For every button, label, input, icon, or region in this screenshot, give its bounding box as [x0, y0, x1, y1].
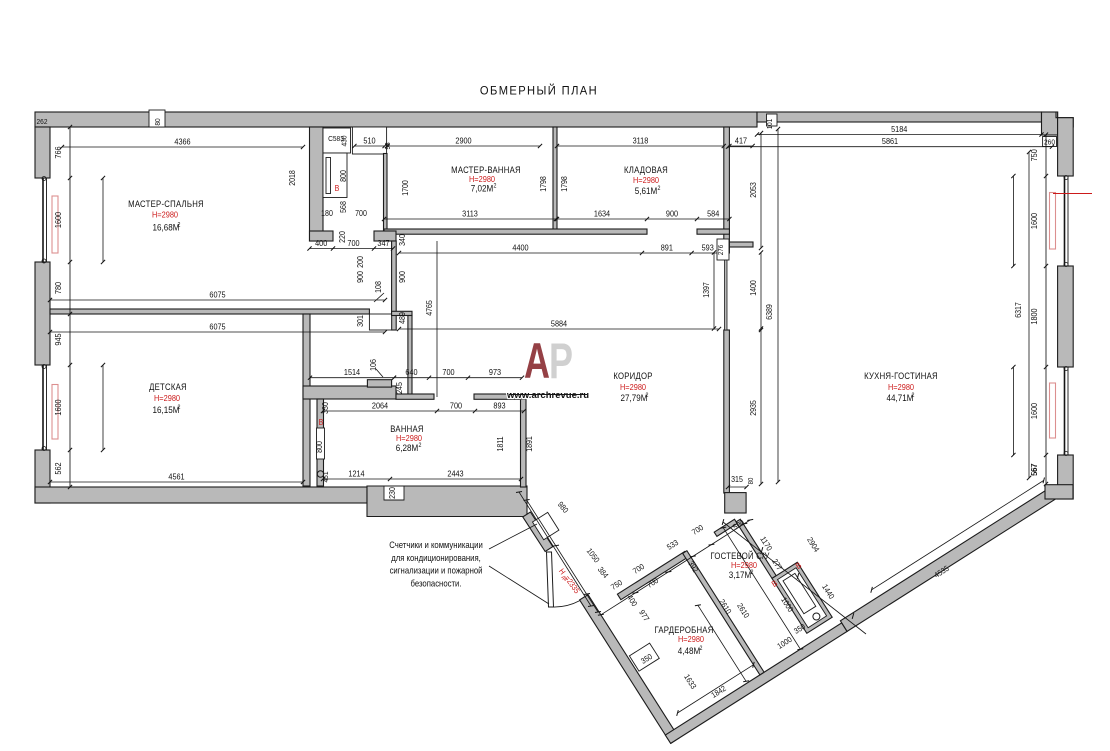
- svg-text:МАСТЕР-СПАЛЬНЯ: МАСТЕР-СПАЛЬНЯ: [128, 200, 204, 210]
- svg-text:2064: 2064: [372, 401, 389, 411]
- svg-text:2: 2: [178, 222, 181, 228]
- svg-text:27,79М: 27,79М: [621, 393, 648, 404]
- svg-text:1700: 1700: [401, 180, 411, 196]
- svg-text:315: 315: [731, 475, 743, 485]
- svg-text:417: 417: [735, 136, 747, 146]
- svg-text:301: 301: [356, 315, 366, 327]
- svg-text:900: 900: [398, 271, 408, 283]
- svg-text:640: 640: [405, 368, 418, 378]
- svg-text:6389: 6389: [765, 304, 775, 320]
- svg-text:16,68М: 16,68М: [153, 222, 180, 233]
- svg-text:2053: 2053: [749, 182, 759, 198]
- svg-text:230: 230: [388, 487, 398, 499]
- svg-text:900: 900: [666, 209, 679, 219]
- svg-text:562: 562: [54, 462, 64, 474]
- svg-text:сигнализации и пожарной: сигнализации и пожарной: [390, 566, 483, 576]
- svg-text:1600: 1600: [54, 211, 64, 228]
- svg-text:262: 262: [37, 119, 48, 126]
- svg-text:ГОСТЕВОЙ С/У: ГОСТЕВОЙ С/У: [710, 549, 770, 561]
- svg-text:893: 893: [493, 401, 505, 411]
- svg-text:2: 2: [494, 183, 497, 189]
- svg-text:Н=2980: Н=2980: [888, 383, 915, 393]
- svg-text:2900: 2900: [455, 136, 472, 146]
- svg-text:330: 330: [321, 402, 331, 414]
- svg-text:В: В: [319, 418, 324, 428]
- svg-text:2: 2: [646, 393, 649, 399]
- svg-text:Р: Р: [549, 334, 573, 389]
- svg-text:Н=2980: Н=2980: [678, 635, 705, 645]
- svg-text:3118: 3118: [633, 136, 649, 146]
- svg-text:1798: 1798: [539, 176, 549, 192]
- svg-text:973: 973: [489, 368, 501, 378]
- svg-text:Н=2980: Н=2980: [620, 383, 647, 393]
- svg-text:2: 2: [419, 443, 422, 449]
- svg-text:1214: 1214: [348, 469, 365, 479]
- svg-text:593: 593: [702, 243, 714, 253]
- svg-text:510: 510: [363, 136, 376, 146]
- svg-text:Н=2980: Н=2980: [633, 176, 660, 186]
- svg-text:1600: 1600: [1030, 402, 1040, 419]
- svg-text:КУХНЯ-ГОСТИНАЯ: КУХНЯ-ГОСТИНАЯ: [864, 372, 938, 382]
- svg-text:1397: 1397: [702, 282, 712, 298]
- svg-text:2: 2: [178, 405, 181, 411]
- svg-text:1400: 1400: [749, 280, 759, 296]
- svg-text:800: 800: [315, 441, 325, 453]
- svg-text:2: 2: [751, 570, 754, 576]
- svg-text:5184: 5184: [891, 125, 908, 135]
- svg-text:2443: 2443: [447, 469, 463, 479]
- svg-text:В: В: [335, 184, 340, 194]
- svg-text:4366: 4366: [174, 137, 190, 147]
- svg-text:276: 276: [718, 245, 725, 256]
- svg-text:КЛАДОВАЯ: КЛАДОВАЯ: [624, 166, 668, 176]
- svg-text:945: 945: [54, 333, 64, 346]
- svg-text:2: 2: [700, 646, 703, 652]
- svg-text:900: 900: [356, 271, 366, 283]
- svg-text:220: 220: [338, 231, 348, 243]
- svg-text:3,17М: 3,17М: [729, 570, 751, 581]
- svg-text:5884: 5884: [551, 319, 568, 329]
- svg-text:2: 2: [912, 393, 915, 399]
- svg-text:108: 108: [374, 281, 384, 293]
- svg-text:340: 340: [398, 234, 408, 246]
- svg-text:430: 430: [341, 135, 348, 146]
- svg-text:1891: 1891: [525, 436, 535, 452]
- svg-text:700: 700: [347, 239, 360, 249]
- svg-text:безопасности.: безопасности.: [411, 579, 462, 589]
- svg-text:1514: 1514: [344, 368, 361, 378]
- svg-text:200: 200: [356, 256, 366, 268]
- svg-text:Счетчики и коммуникации: Счетчики и коммуникации: [389, 541, 483, 551]
- svg-text:106: 106: [369, 359, 379, 371]
- svg-text:2: 2: [658, 186, 661, 192]
- svg-text:6,28М: 6,28М: [396, 443, 418, 454]
- svg-text:347: 347: [377, 239, 389, 249]
- svg-text:766: 766: [54, 146, 64, 158]
- svg-text:700: 700: [450, 401, 463, 411]
- svg-text:1634: 1634: [594, 209, 611, 219]
- svg-text:2018: 2018: [288, 170, 298, 186]
- svg-text:780: 780: [54, 281, 64, 294]
- svg-text:568: 568: [339, 201, 349, 213]
- svg-text:7,02М: 7,02М: [471, 183, 493, 194]
- svg-text:3113: 3113: [462, 209, 478, 219]
- svg-text:www.archrevue.ru: www.archrevue.ru: [506, 390, 589, 401]
- svg-text:400: 400: [315, 239, 328, 249]
- svg-text:180: 180: [321, 209, 333, 219]
- svg-text:80: 80: [748, 477, 755, 484]
- svg-text:245: 245: [395, 382, 405, 394]
- svg-text:КОРИДОР: КОРИДОР: [613, 372, 653, 382]
- svg-text:44,71М: 44,71М: [887, 393, 914, 404]
- svg-text:489: 489: [398, 312, 408, 324]
- svg-text:1798: 1798: [560, 176, 570, 192]
- svg-text:ОБМЕРНЫЙ ПЛАН: ОБМЕРНЫЙ ПЛАН: [480, 84, 598, 97]
- svg-text:16,15М: 16,15М: [153, 405, 180, 416]
- svg-text:1600: 1600: [1030, 212, 1040, 229]
- svg-text:101: 101: [767, 119, 774, 130]
- svg-text:А: А: [524, 334, 550, 389]
- svg-text:584: 584: [707, 209, 720, 219]
- svg-text:4400: 4400: [512, 243, 529, 253]
- svg-text:5,61М: 5,61М: [635, 186, 657, 197]
- svg-text:4,48М: 4,48М: [678, 646, 700, 657]
- svg-text:800: 800: [339, 170, 349, 182]
- svg-text:5861: 5861: [882, 137, 898, 147]
- svg-text:Н=2980: Н=2980: [152, 210, 179, 220]
- svg-text:80: 80: [155, 118, 162, 125]
- svg-text:451: 451: [323, 471, 330, 482]
- svg-text:6075: 6075: [209, 290, 226, 300]
- svg-text:4561: 4561: [168, 472, 184, 482]
- svg-text:891: 891: [661, 243, 673, 253]
- svg-text:6317: 6317: [1014, 302, 1024, 318]
- svg-text:4765: 4765: [425, 300, 435, 316]
- svg-text:700: 700: [442, 368, 455, 378]
- svg-text:Н=2980: Н=2980: [154, 394, 181, 404]
- svg-text:ДЕТСКАЯ: ДЕТСКАЯ: [149, 383, 187, 393]
- svg-text:1600: 1600: [54, 399, 64, 416]
- svg-text:1800: 1800: [1030, 308, 1040, 325]
- svg-text:567: 567: [1030, 464, 1040, 476]
- svg-text:1811: 1811: [496, 436, 506, 451]
- svg-text:6075: 6075: [209, 322, 226, 332]
- svg-text:2935: 2935: [749, 400, 759, 416]
- svg-text:для кондиционирования,: для кондиционирования,: [391, 553, 481, 563]
- svg-text:700: 700: [355, 209, 367, 219]
